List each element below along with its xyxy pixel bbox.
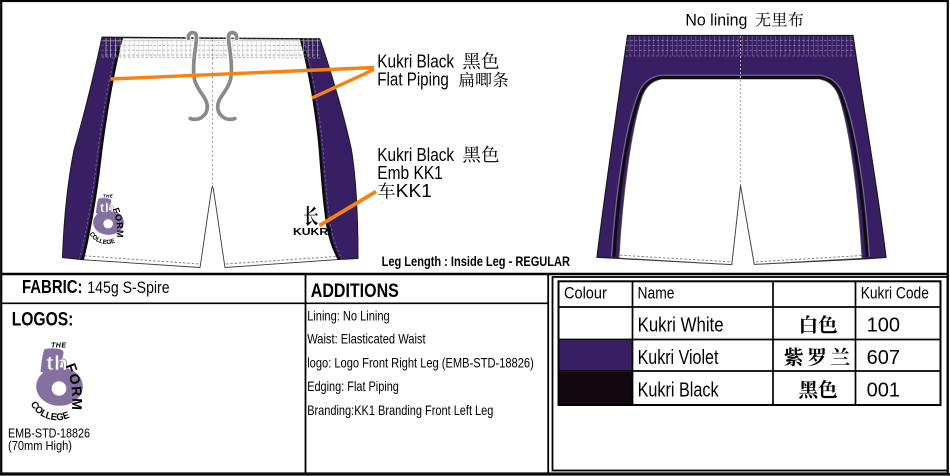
svg-text:Kukri Violet: Kukri Violet xyxy=(638,346,719,369)
svg-text:No lining: No lining xyxy=(685,10,747,29)
svg-text:Kukri Black: Kukri Black xyxy=(638,378,720,401)
svg-text:Edging: Flat Piping: Edging: Flat Piping xyxy=(307,378,399,394)
svg-text:LOGOS:: LOGOS: xyxy=(12,310,74,331)
svg-text:Kukri Code: Kukri Code xyxy=(861,284,929,303)
svg-text:Lining: No Lining: Lining: No Lining xyxy=(307,308,390,324)
svg-text:Name: Name xyxy=(638,284,675,303)
svg-text:145g S-Spire: 145g S-Spire xyxy=(87,279,169,297)
svg-text:ADDITIONS: ADDITIONS xyxy=(311,280,399,302)
svg-text:Kukri White: Kukri White xyxy=(638,314,724,337)
svg-text:Leg Length : Inside Leg - REGU: Leg Length : Inside Leg - REGULAR xyxy=(382,253,570,269)
svg-text:THE: THE xyxy=(51,342,66,349)
svg-text:Waist: Elasticated Waist: Waist: Elasticated Waist xyxy=(307,331,425,347)
svg-text:(70mm High): (70mm High) xyxy=(8,438,72,453)
svg-text:Branding:KK1 Branding Front Le: Branding:KK1 Branding Front Left Leg xyxy=(307,402,493,418)
svg-text:FABRIC:: FABRIC: xyxy=(22,277,83,297)
svg-text:KK1: KK1 xyxy=(396,180,432,201)
svg-text:logo: Logo Front Right Leg (EM: logo: Logo Front Right Leg (EMB-STD-1882… xyxy=(307,354,534,370)
svg-text:THE: THE xyxy=(103,194,114,199)
svg-text:607: 607 xyxy=(867,347,900,369)
svg-text:001: 001 xyxy=(867,379,900,401)
svg-text:Flat Piping: Flat Piping xyxy=(377,69,449,90)
svg-text:Colour: Colour xyxy=(564,284,607,303)
svg-text:KUKRI: KUKRI xyxy=(293,226,332,238)
svg-text:100: 100 xyxy=(867,315,900,337)
